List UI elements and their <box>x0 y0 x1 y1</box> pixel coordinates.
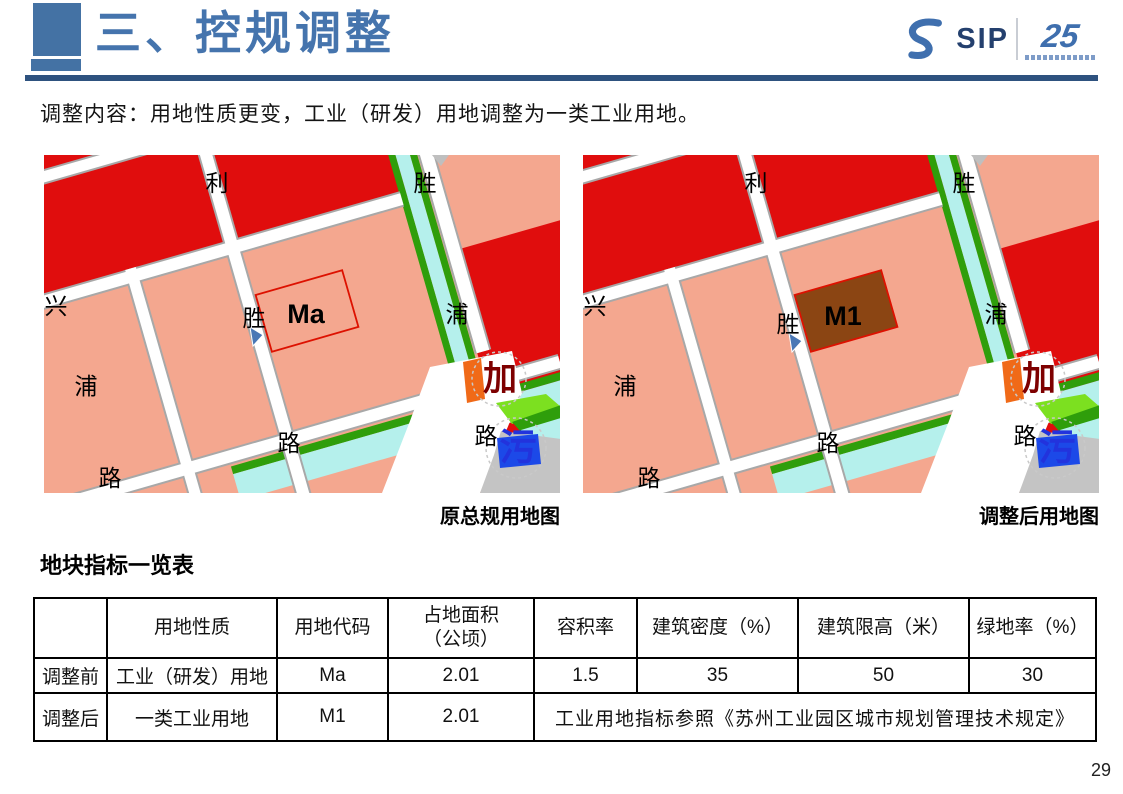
cell-land-code: M1 <box>277 693 388 741</box>
cell-land-use: 工业（研发）用地 <box>107 658 277 693</box>
map-adjusted-plan: 利 胜 兴 浦 胜 浦 路 路 路 加 污 M1 <box>583 155 1099 493</box>
sewage-label: 污 <box>500 427 537 468</box>
header-area: 占地面积 （公顷） <box>388 598 534 658</box>
header-empty <box>34 598 107 658</box>
road-label: 路 <box>475 423 498 449</box>
road-label: 兴 <box>584 293 607 319</box>
road-label: 路 <box>278 430 301 456</box>
cell-far: 1.5 <box>534 658 637 693</box>
logo-divider <box>1016 18 1018 60</box>
page-title: 三、控规调整 <box>95 0 395 66</box>
caption-adjusted-map: 调整后用地图 <box>583 500 1099 529</box>
station-label: 加 <box>483 360 517 398</box>
cell-height-limit: 50 <box>798 658 969 693</box>
road-label: 胜 <box>414 170 437 196</box>
road-label: 浦 <box>614 373 637 399</box>
road-label: 浦 <box>75 373 98 399</box>
road-label: 浦 <box>985 301 1008 327</box>
table-title: 地块指标一览表 <box>40 548 194 580</box>
road-label: 路 <box>638 465 661 491</box>
cell-area: 2.01 <box>388 658 534 693</box>
cell-reference-note: 工业用地指标参照《苏州工业园区城市规划管理技术规定》 <box>534 693 1096 741</box>
title-accent-square <box>33 3 81 56</box>
row-label: 调整后 <box>34 693 107 741</box>
sip-logo-text: SIP <box>956 23 1009 56</box>
cell-area: 2.01 <box>388 693 534 741</box>
anniversary-number: 25 <box>1039 19 1080 53</box>
cell-density: 35 <box>637 658 798 693</box>
table-row-after: 调整后 一类工业用地 M1 2.01 工业用地指标参照《苏州工业园区城市规划管理… <box>34 693 1096 741</box>
sip-logo: SIP 25 <box>903 12 1095 66</box>
station-label: 加 <box>1022 360 1056 398</box>
sewage-label: 污 <box>1039 427 1076 468</box>
header-rule <box>25 75 1098 81</box>
parcel-code-label: M1 <box>824 301 862 331</box>
road-label: 路 <box>99 465 122 491</box>
parcel-code-label: Ma <box>287 299 325 329</box>
road-label: 路 <box>817 430 840 456</box>
anniversary-small-text <box>1025 55 1095 60</box>
header-green-ratio: 绿地率（%） <box>969 598 1096 658</box>
map-original-plan: 利 胜 兴 浦 胜 浦 路 路 路 加 污 Ma <box>44 155 560 493</box>
road-label: 胜 <box>953 170 976 196</box>
caption-original-map: 原总规用地图 <box>44 500 560 529</box>
header-land-code: 用地代码 <box>277 598 388 658</box>
row-label: 调整前 <box>34 658 107 693</box>
page-number: 29 <box>1091 760 1111 781</box>
cell-green-ratio: 30 <box>969 658 1096 693</box>
road-label: 利 <box>206 170 229 196</box>
road-label: 路 <box>1014 423 1037 449</box>
sip-swoosh-icon <box>903 16 949 62</box>
road-label: 胜 <box>243 305 266 331</box>
cell-land-use: 一类工业用地 <box>107 693 277 741</box>
cell-land-code: Ma <box>277 658 388 693</box>
table-row-before: 调整前 工业（研发）用地 Ma 2.01 1.5 35 50 30 <box>34 658 1096 693</box>
header-far: 容积率 <box>534 598 637 658</box>
title-accent-bar <box>31 59 81 71</box>
parcel-indicator-table: 用地性质 用地代码 占地面积 （公顷） 容积率 建筑密度（%） 建筑限高（米） … <box>33 597 1097 742</box>
header-height-limit: 建筑限高（米） <box>798 598 969 658</box>
anniversary-logo: 25 <box>1025 19 1095 60</box>
road-label: 利 <box>745 170 768 196</box>
road-label: 兴 <box>45 293 68 319</box>
header-land-use: 用地性质 <box>107 598 277 658</box>
adjustment-description: 调整内容：用地性质更变，工业（研发）用地调整为一类工业用地。 <box>40 98 700 128</box>
road-label: 胜 <box>777 311 800 337</box>
table-header-row: 用地性质 用地代码 占地面积 （公顷） 容积率 建筑密度（%） 建筑限高（米） … <box>34 598 1096 658</box>
header-density: 建筑密度（%） <box>637 598 798 658</box>
road-label: 浦 <box>446 301 469 327</box>
